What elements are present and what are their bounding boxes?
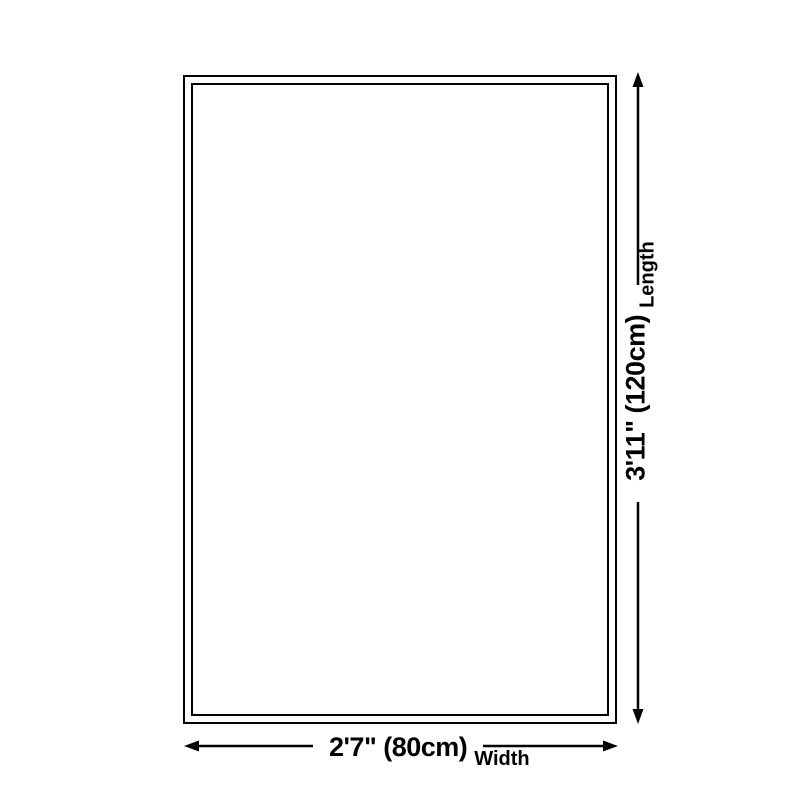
rug-inner-outline	[191, 83, 609, 716]
width-label: Width	[474, 749, 529, 769]
size-diagram: 3'11" (120cm) Length 2'7" (80cm) Width	[0, 0, 800, 800]
arrow-up-icon	[633, 72, 644, 87]
arrow-left-icon	[184, 741, 199, 752]
arrow-down-icon	[633, 709, 644, 724]
arrow-right-icon	[603, 741, 618, 752]
length-value: 3'11" (120cm)	[623, 315, 650, 481]
width-label-group: 2'7" (80cm) Width	[329, 734, 530, 761]
rug-outline	[183, 75, 617, 724]
width-value: 2'7" (80cm)	[329, 734, 467, 761]
length-label: Length	[638, 241, 658, 308]
